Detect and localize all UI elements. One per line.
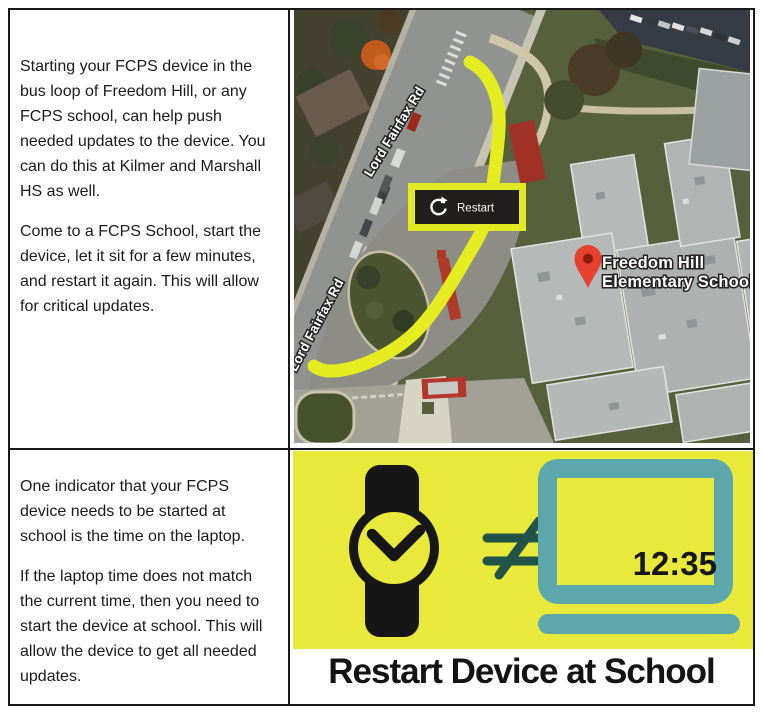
building-top-right xyxy=(689,68,750,171)
school-name-label-line2: Elementary School xyxy=(602,273,750,291)
restart-button-label: Restart xyxy=(457,203,495,215)
cell-map: Restart Freedom Hill Elementary School L… xyxy=(290,10,753,450)
time-instructions-paragraph-1: One indicator that your FCPS device need… xyxy=(20,474,276,549)
time-mismatch-graphic: 12:35 xyxy=(293,451,753,649)
restart-instructions-paragraph-2: Come to a FCPS School, start the device,… xyxy=(20,219,276,319)
restart-button-screenshot: Restart xyxy=(412,187,523,228)
cell-time-instructions: One indicator that your FCPS device need… xyxy=(10,450,290,704)
aerial-map-image: Restart Freedom Hill Elementary School L… xyxy=(294,10,750,443)
cell-restart-graphic: 12:35 Restart Device at School xyxy=(290,450,753,704)
graphic-caption: Restart Device at School xyxy=(290,652,753,692)
time-instructions-paragraph-2: If the laptop time does not match the cu… xyxy=(20,564,276,689)
laptop-time-display: 12:35 xyxy=(633,545,717,582)
restart-instructions-paragraph-1: Starting your FCPS device in the bus loo… xyxy=(20,54,276,204)
cell-restart-instructions: Starting your FCPS device in the bus loo… xyxy=(10,10,290,450)
school-name-label-line1: Freedom Hill xyxy=(602,254,704,272)
instruction-table: Starting your FCPS device in the bus loo… xyxy=(8,8,755,706)
